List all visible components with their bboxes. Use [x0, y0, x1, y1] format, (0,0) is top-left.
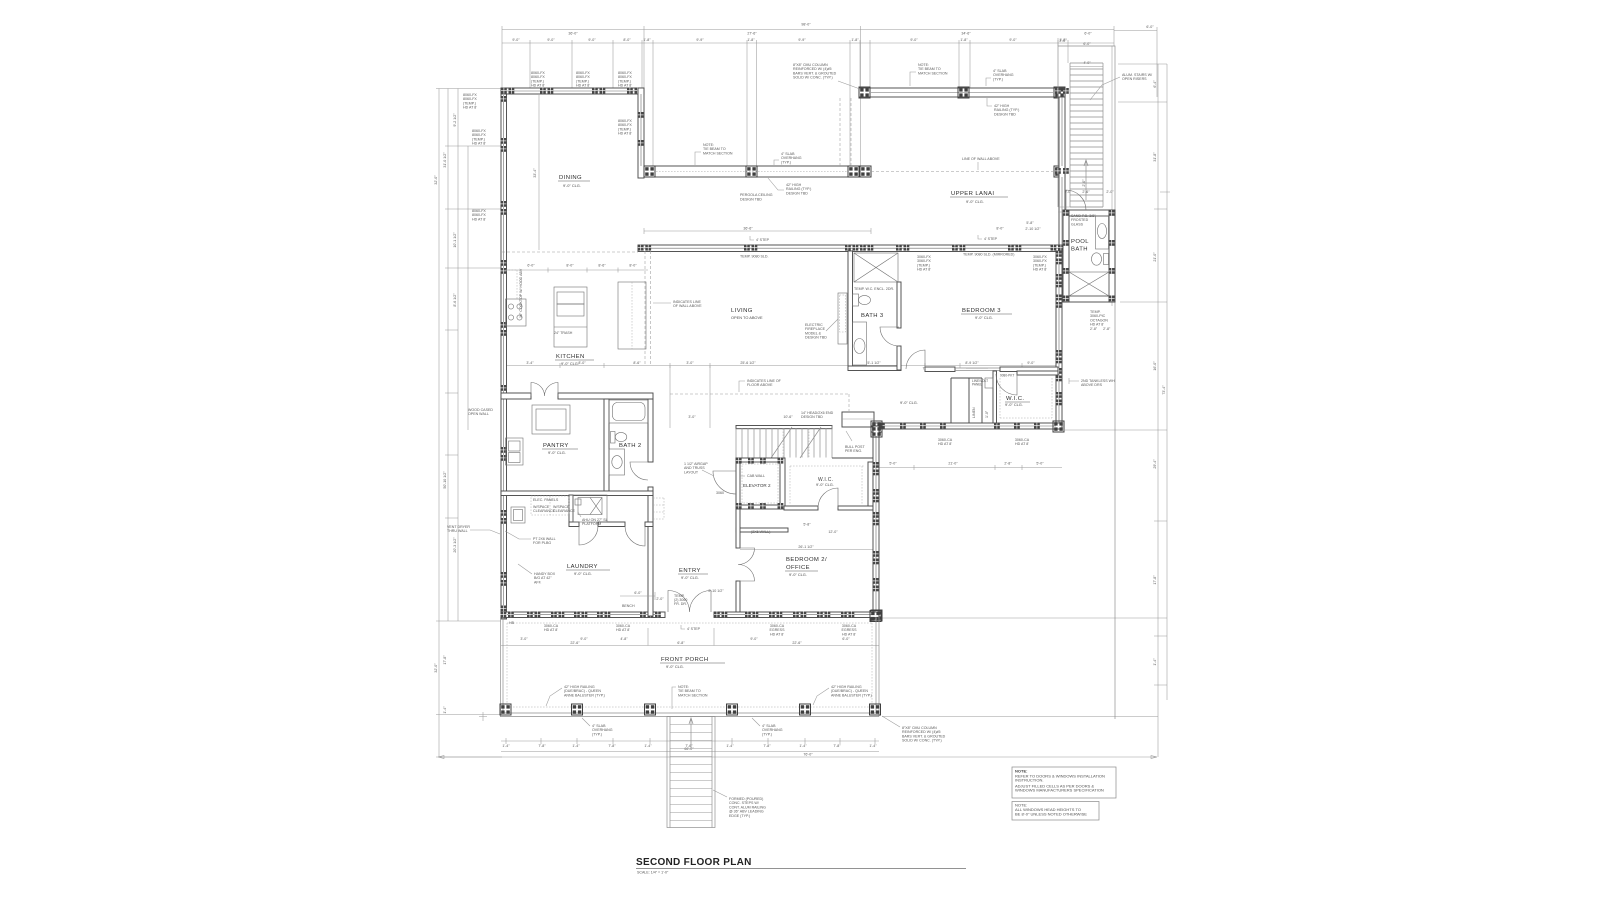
svg-text:INSTRUCTION.: INSTRUCTION.	[1015, 778, 1043, 783]
svg-text:TEMP. W.C. ENCL. 2DR.: TEMP. W.C. ENCL. 2DR.	[854, 287, 894, 291]
svg-text:66'-0": 66'-0"	[684, 747, 694, 751]
svg-text:3'-0": 3'-0"	[520, 637, 528, 641]
svg-text:8060-FX8060-FX(TEMP.)HD AT 8': 8060-FX8060-FX(TEMP.)HD AT 8'	[463, 93, 477, 110]
svg-text:3060-FX3060-FX(TEMP.)HD AT 8': 3060-FX3060-FX(TEMP.)HD AT 8'	[1033, 255, 1047, 272]
svg-text:12'-0": 12'-0"	[828, 530, 838, 534]
svg-text:9'-2 1/2": 9'-2 1/2"	[453, 113, 457, 127]
svg-text:1'-8": 1'-8"	[747, 38, 755, 42]
svg-text:HB: HB	[509, 621, 515, 625]
svg-text:3'-4": 3'-4"	[526, 361, 534, 365]
svg-text:27'-6": 27'-6"	[747, 32, 757, 36]
svg-text:9'-0": 9'-0"	[1027, 361, 1035, 365]
svg-text:5'-8": 5'-8"	[803, 523, 811, 527]
svg-text:8'-6": 8'-6"	[633, 361, 641, 365]
svg-text:9'-0": 9'-0"	[1009, 38, 1017, 42]
svg-text:4' STEP: 4' STEP	[756, 238, 770, 242]
svg-text:9'-0" CLG.: 9'-0" CLG.	[548, 450, 566, 455]
svg-text:VENT DRYERTHRU WALL: VENT DRYERTHRU WALL	[447, 525, 470, 533]
svg-text:16'-0": 16'-0"	[1153, 361, 1157, 371]
svg-text:1'-4": 1'-4"	[443, 706, 447, 714]
svg-text:8060-FX8060-FX(TEMP.)HD AT 8': 8060-FX8060-FX(TEMP.)HD AT 8'	[576, 71, 590, 88]
svg-text:9'-0" CLG.: 9'-0" CLG.	[574, 571, 592, 576]
svg-text:1'-0": 1'-0"	[985, 410, 989, 418]
svg-text:9'-0": 9'-0"	[588, 38, 596, 42]
svg-text:9'-0": 9'-0"	[580, 637, 588, 641]
svg-text:17'-8": 17'-8"	[443, 655, 447, 665]
svg-text:8'-6 1/2": 8'-6 1/2"	[453, 293, 457, 307]
svg-text:32'-0": 32'-0"	[434, 175, 438, 185]
svg-text:1'-4": 1'-4"	[502, 744, 510, 748]
svg-text:2'-10 1/2": 2'-10 1/2"	[708, 589, 724, 593]
svg-text:1'-8": 1'-8"	[960, 38, 968, 42]
svg-text:6'-0": 6'-0"	[634, 591, 642, 595]
svg-text:BATH 3: BATH 3	[861, 313, 884, 319]
svg-text:9'-0" CLG.: 9'-0" CLG.	[789, 572, 807, 577]
svg-text:8'-0": 8'-0"	[996, 227, 1004, 231]
svg-text:26'-1 1/2": 26'-1 1/2"	[798, 545, 814, 549]
svg-text:50'-10 1/2": 50'-10 1/2"	[443, 471, 447, 489]
svg-text:8'-9 1/2": 8'-9 1/2"	[965, 361, 979, 365]
svg-text:17'-8": 17'-8"	[1153, 575, 1157, 585]
svg-text:5'-1 1/2": 5'-1 1/2"	[867, 361, 881, 365]
svg-text:6'-0": 6'-0"	[1146, 25, 1154, 29]
svg-text:9'-0" CLG.: 9'-0" CLG.	[966, 199, 984, 204]
svg-text:(2X6 WALL): (2X6 WALL)	[751, 530, 770, 534]
svg-text:OPEN TO ABOVE: OPEN TO ABOVE	[731, 315, 763, 320]
svg-text:POOLBATH: POOLBATH	[1071, 239, 1089, 253]
svg-text:3'-0": 3'-0"	[686, 361, 694, 365]
svg-text:6'-0": 6'-0"	[1083, 42, 1091, 46]
svg-text:21'-0": 21'-0"	[1153, 252, 1157, 262]
svg-text:8'-0": 8'-0"	[578, 361, 586, 365]
svg-text:3060-CAHD AT 8': 3060-CAHD AT 8'	[544, 624, 559, 632]
svg-text:7'-8": 7'-8"	[608, 744, 616, 748]
svg-text:8060-FX8060-FX(TEMP.)HD AT 8': 8060-FX8060-FX(TEMP.)HD AT 8'	[472, 129, 486, 146]
svg-text:TEMP. 9080 SLD.: TEMP. 9080 SLD.	[740, 255, 769, 259]
svg-text:9'-0" CLG.: 9'-0" CLG.	[900, 400, 918, 405]
svg-text:22'-6": 22'-6"	[570, 641, 580, 645]
svg-text:9'-0" CLG.: 9'-0" CLG.	[563, 183, 581, 188]
svg-text:3060-CAEGRESSHD AT 8': 3060-CAEGRESSHD AT 8'	[842, 624, 858, 636]
svg-text:1'-8": 1'-8"	[851, 38, 859, 42]
svg-text:9'-9": 9'-9"	[798, 38, 806, 42]
svg-text:36" COOKTOP W/ HOOD ABV: 36" COOKTOP W/ HOOD ABV	[519, 268, 523, 318]
svg-text:9'-0" CLG.: 9'-0" CLG.	[666, 664, 684, 669]
svg-text:6'-0": 6'-0"	[527, 264, 535, 268]
svg-text:BEDROOM 2/: BEDROOM 2/	[786, 557, 827, 563]
svg-text:9'-0" CLG.: 9'-0" CLG.	[816, 482, 834, 487]
svg-text:10'-1 1/2": 10'-1 1/2"	[453, 232, 457, 248]
svg-text:4' STEP: 4' STEP	[687, 627, 701, 631]
svg-text:36'-6": 36'-6"	[743, 227, 753, 231]
svg-text:2'-0": 2'-0"	[1059, 39, 1067, 43]
svg-text:36'-0": 36'-0"	[568, 32, 578, 36]
svg-text:6'-0": 6'-0"	[1084, 32, 1092, 36]
svg-text:20'-3 1/2": 20'-3 1/2"	[453, 537, 457, 553]
svg-text:ENTRY: ENTRY	[679, 568, 701, 574]
svg-text:ELEC. PANELS: ELEC. PANELS	[533, 498, 559, 502]
svg-text:8060-FX8060-FX(TEMP.)HD AT 8': 8060-FX8060-FX(TEMP.)HD AT 8'	[618, 119, 632, 136]
svg-text:2'-6": 2'-6"	[1082, 190, 1090, 194]
svg-text:9'-0" CLG.: 9'-0" CLG.	[1005, 402, 1023, 407]
svg-text:9'-0": 9'-0"	[512, 38, 520, 42]
svg-text:5'-0": 5'-0"	[1036, 462, 1044, 466]
svg-text:3060-FX3060-FX(TEMP.)HD AT 8': 3060-FX3060-FX(TEMP.)HD AT 8'	[917, 255, 931, 272]
svg-text:8060-FX8060-FX(TEMP.)HD AT 8': 8060-FX8060-FX(TEMP.)HD AT 8'	[618, 71, 632, 88]
svg-text:9'-0" CLG.: 9'-0" CLG.	[975, 315, 993, 320]
svg-text:3060-CAEGRESSHD AT 8': 3060-CAEGRESSHD AT 8'	[770, 624, 786, 636]
svg-text:ELEVATOR 2: ELEVATOR 2	[743, 483, 771, 488]
svg-text:76'-0": 76'-0"	[803, 753, 813, 757]
svg-text:LINE OF WALL ABOVE: LINE OF WALL ABOVE	[962, 157, 1000, 161]
svg-text:8060-FX8060-FX(TEMP.)HD AT 8': 8060-FX8060-FX(TEMP.)HD AT 8'	[531, 71, 545, 88]
svg-text:9'-0" CLG.: 9'-0" CLG.	[561, 361, 579, 366]
svg-text:9'-0": 9'-0"	[547, 38, 555, 42]
svg-text:TEMP. 9080 SLD. (MIRRORED): TEMP. 9080 SLD. (MIRRORED)	[963, 253, 1014, 257]
svg-text:3060-CAHD AT 8': 3060-CAHD AT 8'	[616, 624, 631, 632]
svg-text:4'-8": 4'-8"	[620, 637, 628, 641]
svg-text:2'-0": 2'-0"	[1082, 179, 1086, 187]
svg-text:WINDOWS MANUFACTURERS SPECIFIC: WINDOWS MANUFACTURERS SPECIFICATION	[1015, 788, 1104, 793]
svg-text:FRONT PORCH: FRONT PORCH	[661, 657, 709, 663]
svg-text:BE 8'-0" UNLESS NOTED OTHERWIS: BE 8'-0" UNLESS NOTED OTHERWISE	[1015, 812, 1087, 817]
svg-text:3060: 3060	[716, 491, 724, 495]
svg-text:31'-0 1/2": 31'-0 1/2"	[443, 152, 447, 168]
svg-text:1'-4": 1'-4"	[869, 744, 877, 748]
svg-text:BATH 2: BATH 2	[619, 443, 642, 449]
svg-text:1'-4": 1'-4"	[799, 744, 807, 748]
svg-text:8060-FX8060-FXHD AT 8': 8060-FX8060-FXHD AT 8'	[472, 209, 486, 221]
svg-text:2'-10 1/2": 2'-10 1/2"	[1025, 227, 1041, 231]
svg-text:INDICATES LINEOF WALL ABOVE: INDICATES LINEOF WALL ABOVE	[673, 300, 702, 308]
svg-text:LIVING: LIVING	[731, 308, 753, 314]
svg-text:UPPER LANAI: UPPER LANAI	[951, 191, 994, 197]
svg-text:1'-8": 1'-8"	[643, 38, 651, 42]
svg-text:SCALE: 1/4" = 1'-0": SCALE: 1/4" = 1'-0"	[637, 871, 669, 875]
svg-text:6'-4": 6'-4"	[1153, 80, 1157, 88]
svg-text:LAUNDRY: LAUNDRY	[567, 564, 598, 570]
svg-text:31'-8": 31'-8"	[1153, 152, 1157, 162]
svg-text:8'-0": 8'-0"	[629, 264, 637, 268]
svg-text:6'-8": 6'-8"	[677, 641, 685, 645]
svg-text:PANTRY: PANTRY	[543, 443, 569, 449]
svg-text:5'-0": 5'-0"	[889, 462, 897, 466]
svg-text:SECOND FLOOR PLAN: SECOND FLOOR PLAN	[636, 857, 752, 868]
svg-text:8'-6": 8'-6"	[598, 264, 606, 268]
svg-text:OFFICE: OFFICE	[786, 565, 810, 571]
svg-text:3060-CAHD AT 8': 3060-CAHD AT 8'	[938, 438, 953, 446]
svg-text:3060-CAHD AT 8': 3060-CAHD AT 8'	[1015, 438, 1030, 446]
svg-text:7'-8": 7'-8"	[833, 744, 841, 748]
svg-text:8'-0": 8'-0"	[623, 38, 631, 42]
svg-text:4' STEP: 4' STEP	[984, 237, 998, 241]
svg-text:KITCHEN: KITCHEN	[556, 354, 585, 360]
svg-text:7'-8": 7'-8"	[538, 744, 546, 748]
svg-text:2'-8": 2'-8"	[1004, 462, 1012, 466]
svg-text:22'-6": 22'-6"	[792, 641, 802, 645]
svg-text:10'-6": 10'-6"	[783, 415, 793, 419]
svg-text:7'-8": 7'-8"	[763, 744, 771, 748]
svg-text:LINEN: LINEN	[972, 407, 976, 418]
svg-text:1'-4": 1'-4"	[1153, 658, 1157, 666]
svg-text:34'-6": 34'-6"	[961, 32, 971, 36]
svg-text:24" TRASH: 24" TRASH	[554, 331, 573, 335]
svg-text:DINING: DINING	[559, 175, 582, 181]
svg-text:9'-9": 9'-9"	[696, 38, 704, 42]
svg-text:BENCH: BENCH	[622, 604, 635, 608]
svg-text:9'-0": 9'-0"	[910, 38, 918, 42]
svg-text:8'-0": 8'-0"	[566, 264, 574, 268]
svg-text:32'-0": 32'-0"	[434, 663, 438, 673]
svg-text:BEDROOM 3: BEDROOM 3	[962, 308, 1001, 314]
svg-text:1'-4": 1'-4"	[726, 744, 734, 748]
svg-text:2'-0": 2'-0"	[656, 597, 664, 601]
svg-text:21'-0": 21'-0"	[948, 462, 958, 466]
svg-text:9080-PKT: 9080-PKT	[1000, 374, 1014, 378]
svg-text:9'-0": 9'-0"	[750, 637, 758, 641]
svg-text:98'-0": 98'-0"	[801, 23, 811, 27]
svg-text:1'-4": 1'-4"	[644, 744, 652, 748]
svg-text:1'-4": 1'-4"	[572, 744, 580, 748]
svg-text:25'-6 1/2": 25'-6 1/2"	[740, 361, 756, 365]
svg-text:33'-4": 33'-4"	[533, 168, 537, 178]
svg-text:5'-8": 5'-8"	[1026, 221, 1034, 225]
svg-text:6'-0": 6'-0"	[842, 637, 850, 641]
svg-text:2'-0": 2'-0"	[1106, 190, 1114, 194]
svg-text:CAB WALL: CAB WALL	[747, 474, 765, 478]
svg-text:29'-4": 29'-4"	[1153, 459, 1157, 469]
svg-text:73'-4": 73'-4"	[1162, 385, 1166, 395]
svg-text:9'-0" CLG.: 9'-0" CLG.	[681, 575, 699, 580]
svg-text:3'-0": 3'-0"	[688, 415, 696, 419]
